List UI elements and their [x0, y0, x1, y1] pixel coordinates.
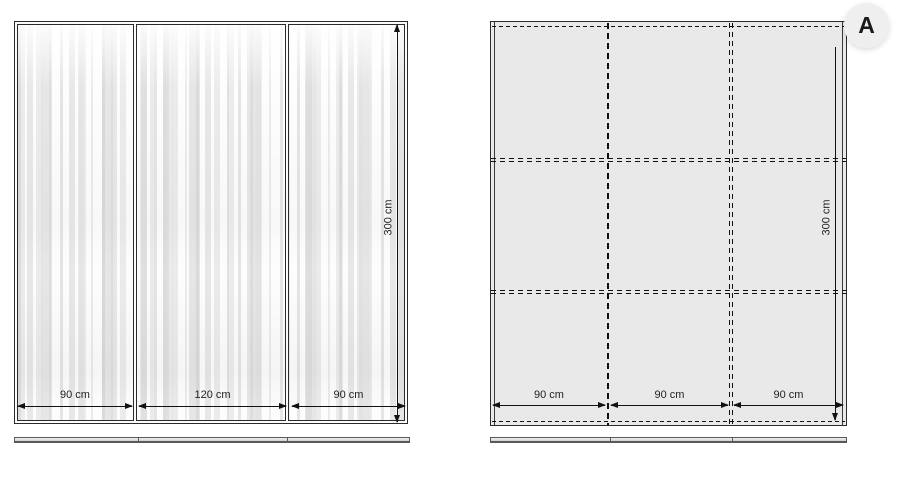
width-dimension-label: 90 cm — [610, 390, 729, 401]
width-dimension-label: 90 cm — [492, 390, 606, 401]
width-dimension-arrow — [492, 402, 606, 409]
fold-line-bottom — [492, 421, 845, 422]
rail-joint — [732, 437, 733, 443]
technical-drawing: 90 cm 120 cm 90 cm 300 cm — [0, 0, 917, 477]
dimension-line — [835, 47, 836, 420]
dimension-line — [292, 406, 405, 407]
arrowhead-right — [279, 403, 287, 409]
variant-badge: A — [844, 3, 889, 48]
height-dimension-label: 300 cm — [821, 183, 834, 253]
frame-inner-edge-left — [494, 22, 495, 425]
width-dimension-arrow — [610, 402, 729, 409]
frame-inner-edge-right — [842, 22, 843, 425]
right-wardrobe-frame — [490, 21, 847, 426]
dashed-line — [491, 158, 846, 159]
panel-split-line-right — [729, 23, 733, 425]
rail-joint — [138, 437, 139, 443]
width-dimension-label: 90 cm — [17, 390, 133, 401]
fold-line-top — [492, 26, 845, 27]
dimension-line — [611, 405, 728, 406]
width-dimension-arrow — [291, 403, 406, 410]
dimension-line — [493, 405, 605, 406]
dimension-line — [139, 406, 286, 407]
dashed-line — [732, 23, 733, 425]
dimension-line — [397, 25, 398, 422]
dashed-line — [491, 290, 846, 291]
width-dimension-label: 90 cm — [291, 390, 406, 401]
dimension-line — [18, 406, 132, 407]
dashed-line — [491, 161, 846, 162]
width-dimension-arrow — [17, 403, 133, 410]
door-panel-left — [17, 24, 134, 421]
dashed-line — [729, 23, 730, 425]
rail-joint — [287, 437, 288, 443]
fold-line-horizontal-upper — [491, 158, 846, 162]
panel-split-line-left — [607, 23, 609, 425]
arrowhead-right — [598, 402, 606, 408]
arrowhead-down — [832, 413, 838, 421]
floor-rail — [14, 437, 410, 443]
dimension-line — [734, 405, 843, 406]
width-dimension-arrow — [733, 402, 844, 409]
height-dimension-label: 300 cm — [383, 183, 396, 253]
width-dimension-label: 90 cm — [733, 390, 844, 401]
arrowhead-down — [394, 415, 400, 423]
dashed-line — [491, 293, 846, 294]
arrowhead-right — [721, 402, 729, 408]
fold-line-horizontal-lower — [491, 290, 846, 294]
rail-joint — [610, 437, 611, 443]
width-dimension-arrow — [138, 403, 287, 410]
floor-rail — [490, 437, 847, 443]
door-panel-center — [136, 24, 286, 421]
left-wardrobe-frame — [14, 21, 408, 424]
width-dimension-label: 120 cm — [138, 390, 287, 401]
variant-badge-letter: A — [858, 12, 875, 39]
arrowhead-right — [125, 403, 133, 409]
